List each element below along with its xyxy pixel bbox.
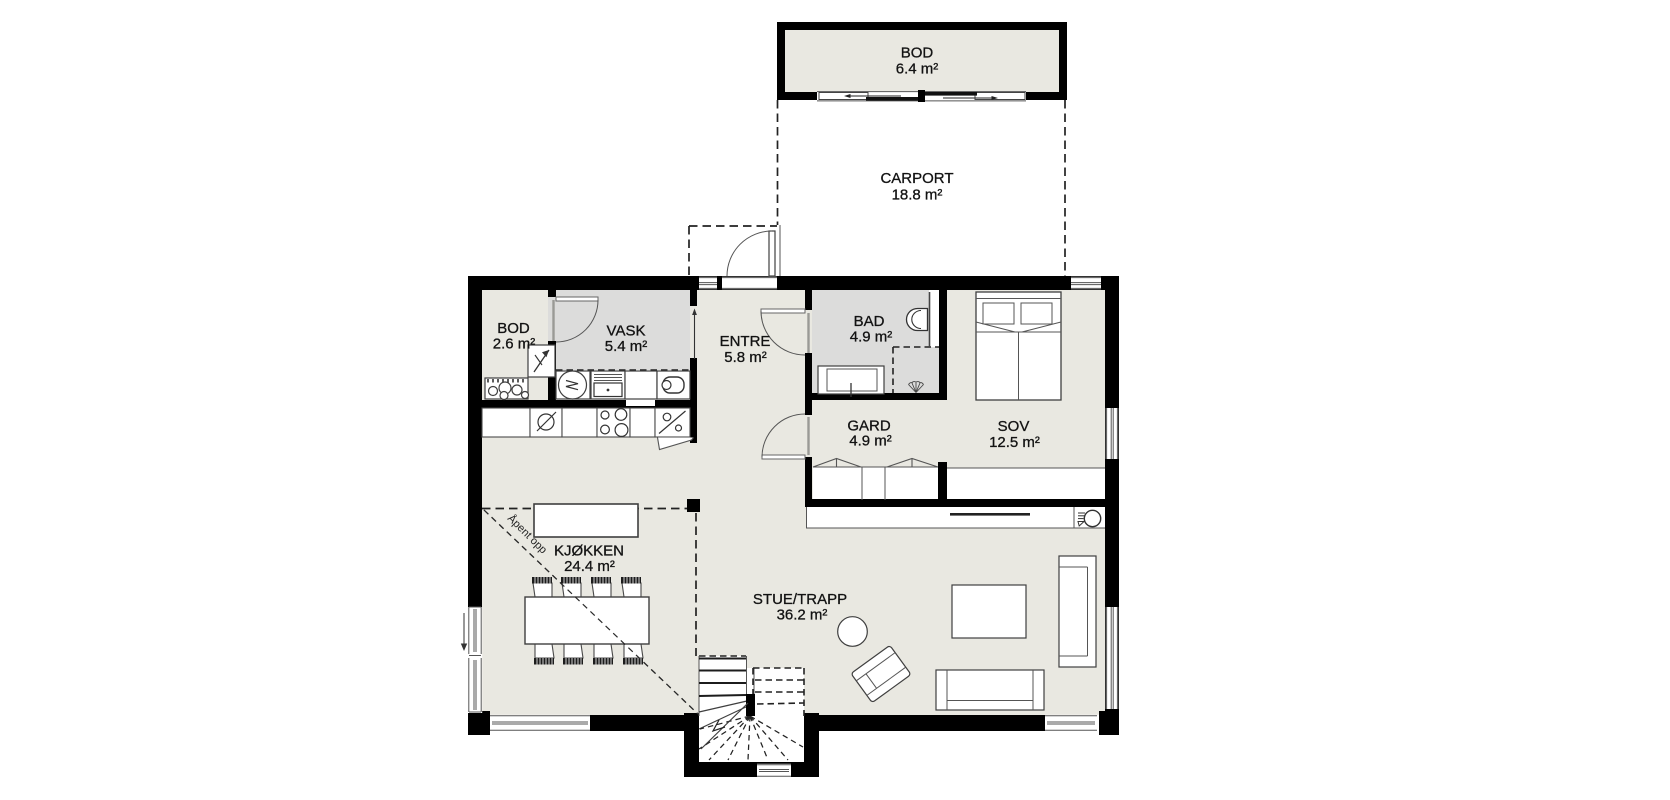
svg-text:BAD: BAD: [854, 313, 885, 330]
svg-text:5.8 m²: 5.8 m²: [724, 349, 767, 366]
svg-text:BOD: BOD: [497, 320, 530, 337]
svg-text:6.4 m²: 6.4 m²: [896, 61, 939, 78]
svg-text:2.6 m²: 2.6 m²: [493, 336, 536, 353]
svg-text:4.9 m²: 4.9 m²: [849, 433, 892, 450]
svg-text:4.9 m²: 4.9 m²: [850, 329, 893, 346]
svg-text:18.8 m²: 18.8 m²: [892, 187, 943, 204]
svg-text:5.4 m²: 5.4 m²: [605, 338, 648, 355]
svg-text:SOV: SOV: [998, 418, 1030, 435]
svg-text:12.5 m²: 12.5 m²: [989, 434, 1040, 451]
svg-text:ENTRE: ENTRE: [720, 333, 771, 350]
svg-text:STUE/TRAPP: STUE/TRAPP: [753, 591, 847, 608]
svg-text:BOD: BOD: [901, 45, 934, 62]
svg-text:36.2 m²: 36.2 m²: [777, 607, 828, 624]
svg-text:KJØKKEN: KJØKKEN: [554, 543, 624, 560]
svg-text:24.4 m²: 24.4 m²: [564, 558, 615, 575]
svg-text:VASK: VASK: [607, 323, 646, 340]
svg-text:CARPORT: CARPORT: [880, 170, 953, 187]
